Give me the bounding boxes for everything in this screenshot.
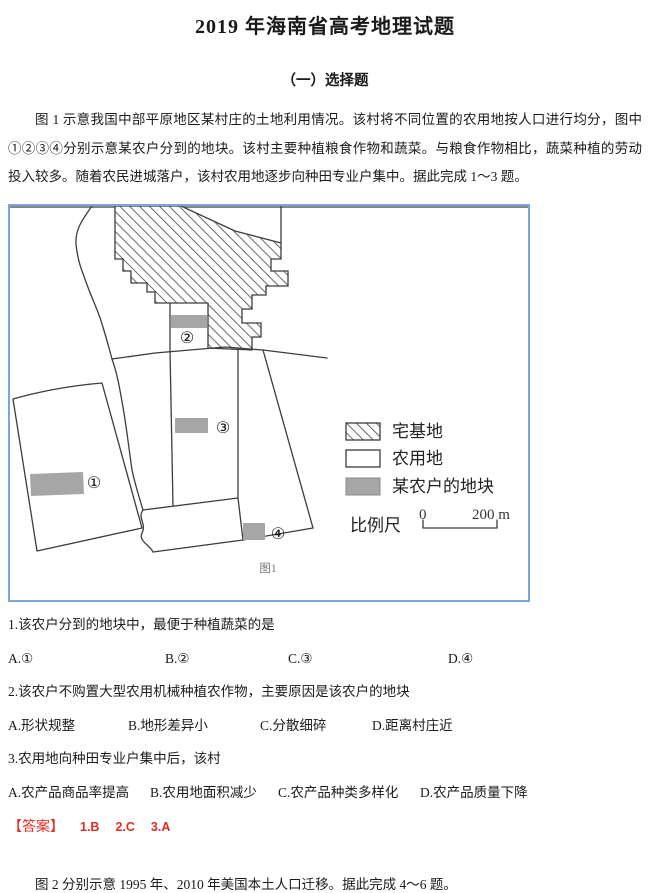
answer-item-3: 3.A [151,820,170,834]
question-1-option-b: B.② [165,649,288,669]
question-1-option-d: D.④ [448,649,473,669]
road-line [76,206,112,359]
plot-1-strip [30,472,84,496]
figure-1-map: ① ② ③ ④ 宅基地 农用地 某农户的地块 比例尺 [8,204,530,602]
question-3-stem: 3.农用地向种田专业户集中后，该村 [8,749,642,769]
scale-start-value: 0 [419,507,427,523]
legend-swatch-homestead [346,423,380,440]
village-land-use-map: ① ② ③ ④ 宅基地 农用地 某农户的地块 比例尺 [10,206,528,600]
question-1-options: A.① B.② C.③ D.④ [8,649,642,669]
question-2: 2.该农户不购置大型农用机械种植农作物，主要原因是该农户的地块 A.形状规整 B… [8,682,642,736]
question-3: 3.农用地向种田专业户集中后，该村 A.农产品商品率提高 B.农用地面积减少 C… [8,749,642,803]
map-legend: 宅基地 农用地 某农户的地块 [346,422,494,496]
scale-end-value: 200 m [472,507,510,523]
section-heading: （一）选择题 [8,69,642,90]
svg-text:②: ② [180,330,194,347]
legend-swatch-farmland [346,450,380,467]
question-2-option-b: B.地形差异小 [128,716,260,736]
question-3-options: A.农产品商品率提高 B.农用地面积减少 C.农产品种类多样化 D.农产品质量下… [8,783,642,803]
question-1-option-a: A.① [8,649,165,669]
question-1-stem: 1.该农户分到的地块中，最便于种植蔬菜的是 [8,615,642,635]
figure-caption: 图1 [259,562,276,575]
question-3-option-d: D.农产品质量下降 [420,783,528,803]
bottom-strip-top-edge [143,498,238,510]
legend-swatch-farmer-plot [346,478,380,495]
bottom-strip-bottom-edge [153,528,313,552]
intro-paragraph: 图 1 示意我国中部平原地区某村庄的土地利用情况。该村将不同位置的农用地按人口进… [8,106,642,192]
answers-line: 【答案】 1.B 2.C 3.A [8,816,642,836]
question-1-option-c: C.③ [288,649,448,669]
answer-item-2: 2.C [115,820,134,834]
right-field-right-edge [263,350,313,528]
center-field-left-edge [170,303,173,506]
question-3-option-b: B.农用地面积减少 [150,783,278,803]
legend-label-homestead: 宅基地 [392,422,443,441]
question-3-option-a: A.农产品商品率提高 [8,783,150,803]
closing-paragraph: 图 2 分别示意 1995 年、2010 年美国本土人口迁移。据此完成 4～6 … [8,873,642,893]
page-title: 2019 年海南省高考地理试题 [8,10,642,39]
question-2-option-c: C.分散细碎 [260,716,372,736]
scale-label: 比例尺 [350,516,401,535]
question-2-options: A.形状规整 B.地形差异小 C.分散细碎 D.距离村庄近 [8,716,642,736]
svg-text:④: ④ [271,526,285,543]
answers-label: 【答案】 [8,816,64,836]
question-3-option-c: C.农产品种类多样化 [278,783,420,803]
scale-bar: 比例尺 0 200 m [350,507,510,535]
center-field-right-edge [238,348,243,540]
question-2-stem: 2.该农户不购置大型农用机械种植农作物，主要原因是该农户的地块 [8,682,642,702]
question-1: 1.该农户分到的地块中，最便于种植蔬菜的是 A.① B.② C.③ D.④ [8,615,642,669]
homestead-hatched-region [115,206,288,350]
exam-page: 2019 年海南省高考地理试题 （一）选择题 图 1 示意我国中部平原地区某村庄… [0,0,650,893]
plot-3-label: ③ [216,420,230,437]
svg-text:①: ① [87,475,101,492]
plot-4-strip [243,523,265,540]
question-2-option-d: D.距离村庄近 [372,716,453,736]
legend-label-farmer-plot: 某农户的地块 [392,477,494,496]
plot-2-strip [171,315,207,328]
plot-2-label: ② [180,330,194,347]
plot-4-label: ④ [271,526,285,543]
legend-label-farmland: 农用地 [392,449,443,468]
svg-text:③: ③ [216,420,230,437]
plot-3-strip [175,418,208,433]
field-boundary-left-wavy [112,359,153,552]
plot-1-label: ① [87,475,101,492]
answer-item-1: 1.B [80,820,99,834]
question-2-option-a: A.形状规整 [8,716,128,736]
